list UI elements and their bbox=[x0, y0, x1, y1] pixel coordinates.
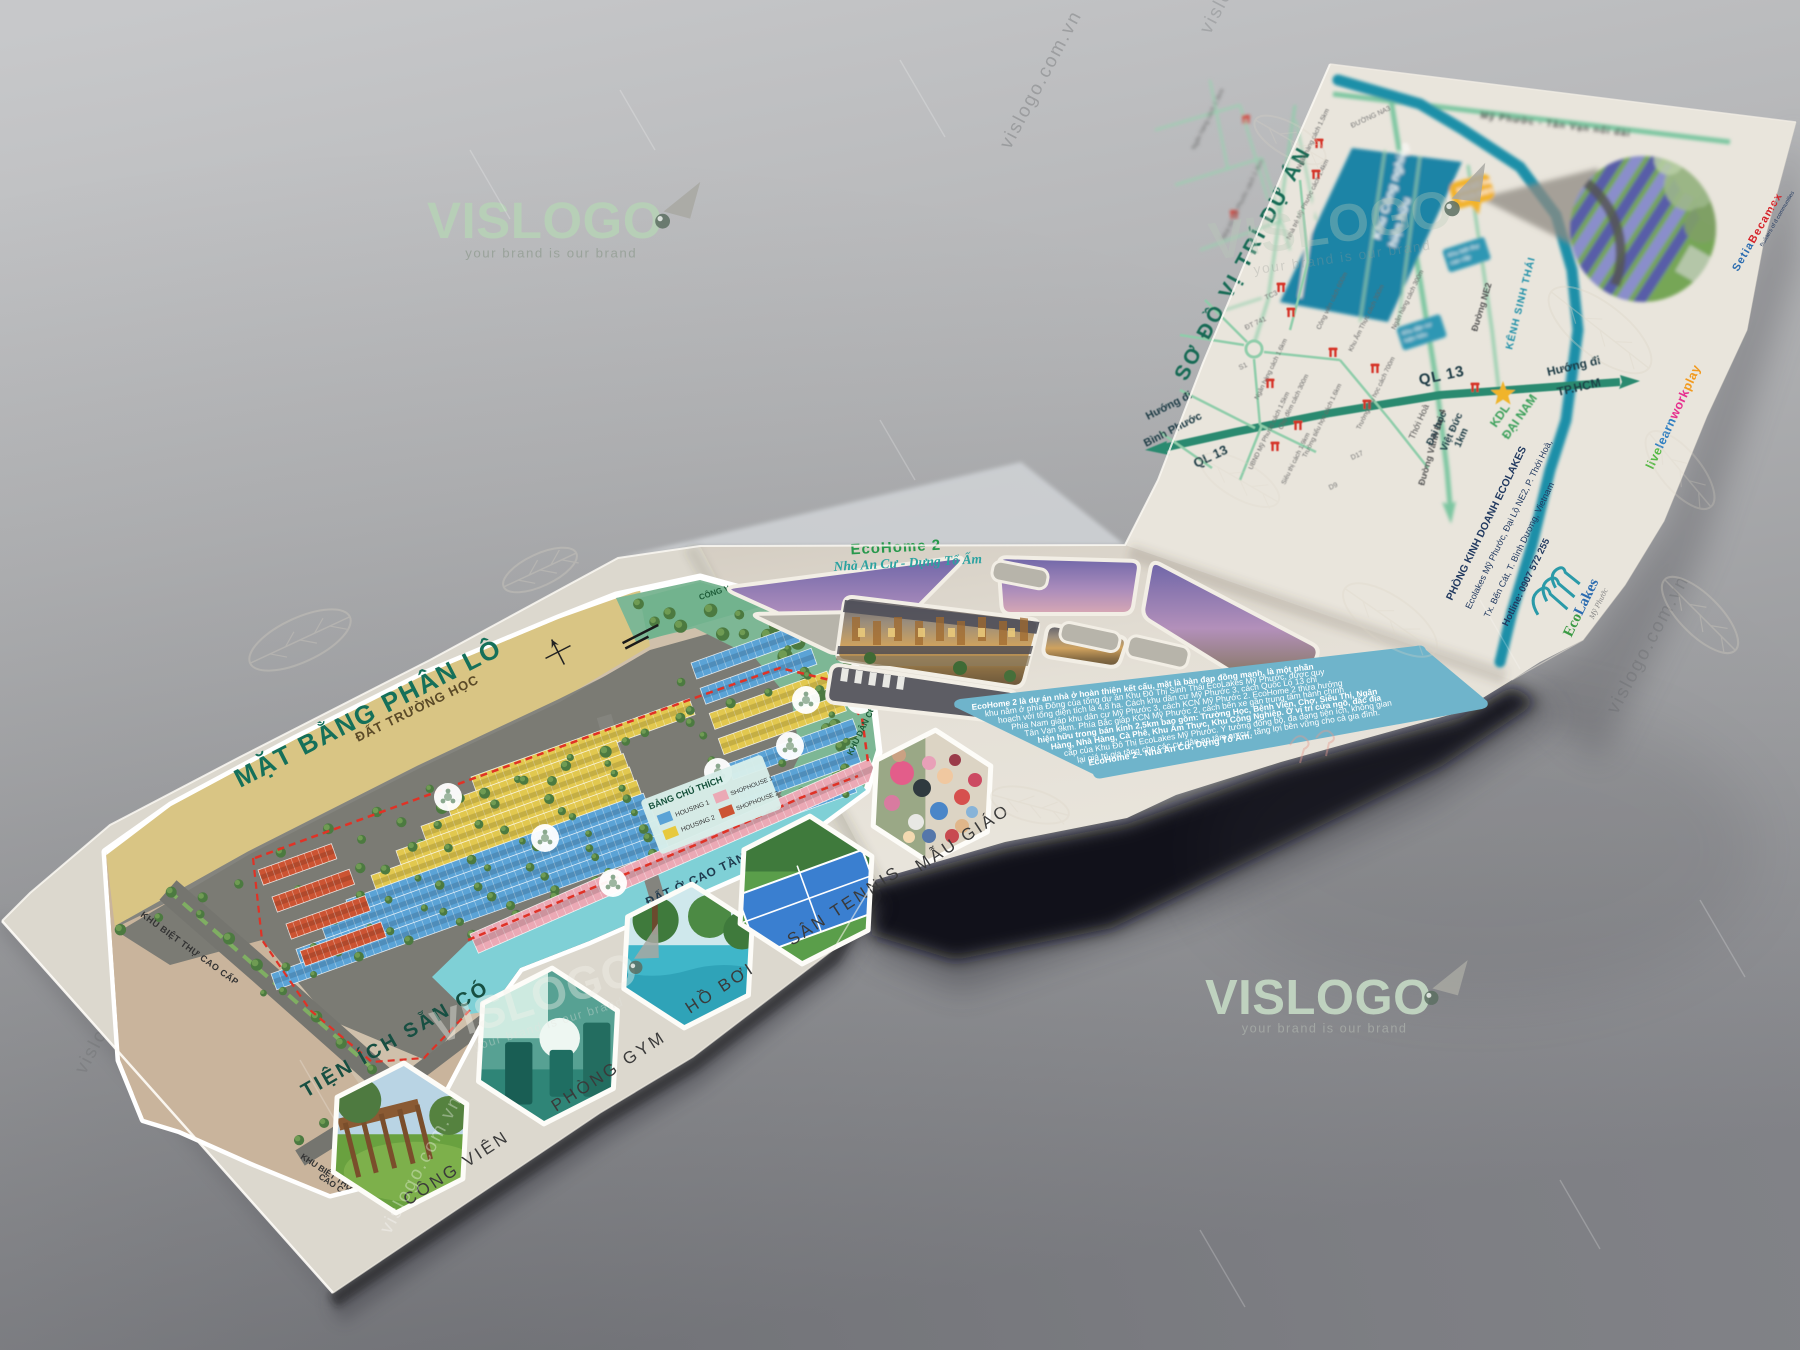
svg-text:your brand is our brand: your brand is our brand bbox=[1242, 1022, 1408, 1036]
svg-text:VISLOGO: VISLOGO bbox=[427, 192, 663, 249]
svg-text:your brand is our brand: your brand is our brand bbox=[465, 245, 637, 260]
svg-text:VISLOGO: VISLOGO bbox=[1205, 971, 1432, 1025]
